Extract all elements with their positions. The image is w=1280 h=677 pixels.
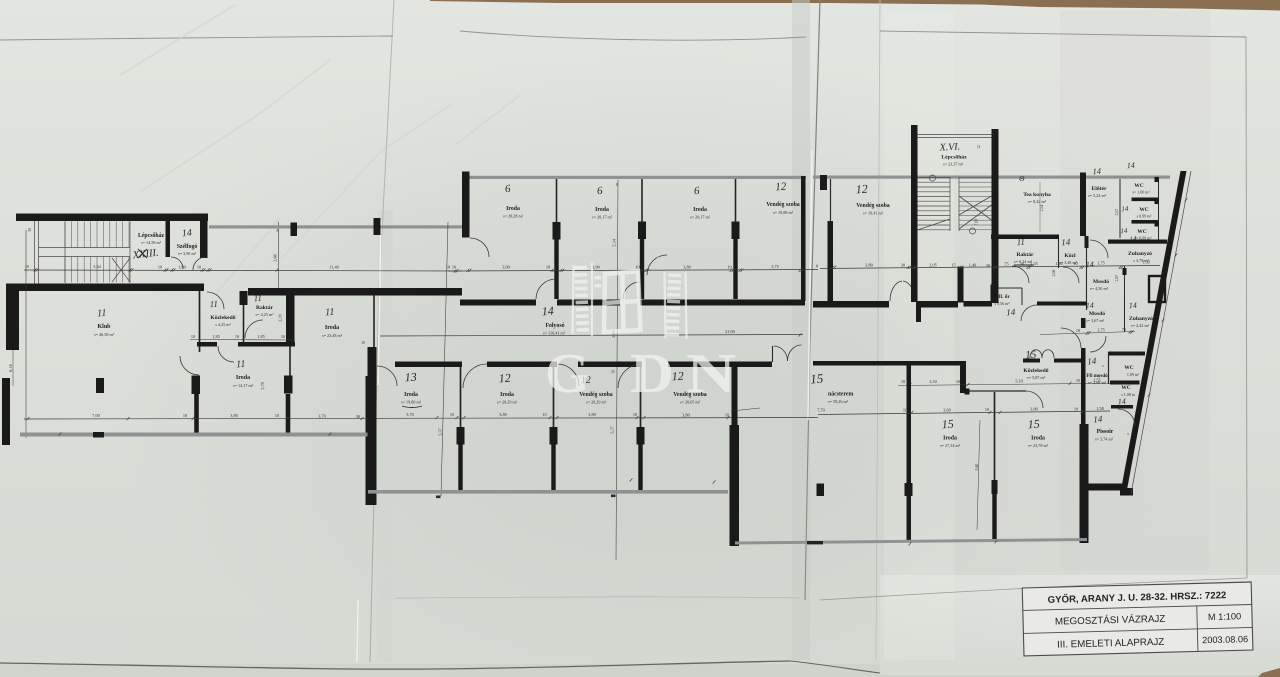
svg-text:14: 14 <box>1129 301 1138 311</box>
svg-text:10: 10 <box>1076 328 1080 333</box>
svg-text:30: 30 <box>986 263 990 268</box>
svg-text:2003.08.06: 2003.08.06 <box>1202 634 1248 645</box>
svg-text:10: 10 <box>956 379 960 384</box>
svg-text:10: 10 <box>361 341 365 345</box>
svg-text:11: 11 <box>325 307 335 319</box>
svg-text:WC: WC <box>1139 207 1148 213</box>
svg-text:10: 10 <box>1074 407 1078 412</box>
svg-text:12: 12 <box>977 145 981 149</box>
svg-text:Ffi mosdó: Ffi mosdó <box>1086 374 1108 379</box>
svg-text:N: N <box>686 343 736 405</box>
svg-text:11: 11 <box>253 293 262 304</box>
svg-text:14: 14 <box>1120 227 1128 236</box>
svg-text:G: G <box>545 343 590 405</box>
svg-text:15: 15 <box>941 417 954 432</box>
svg-text:14: 14 <box>1142 366 1150 375</box>
svg-text:8: 8 <box>616 183 618 187</box>
svg-text:WC: WC <box>1134 183 1143 189</box>
svg-text:14: 14 <box>1118 397 1127 407</box>
svg-text:11: 11 <box>209 299 218 310</box>
svg-text:14: 14 <box>1006 307 1016 318</box>
svg-text:15: 15 <box>951 263 955 268</box>
svg-text:30: 30 <box>356 414 360 419</box>
svg-text:11: 11 <box>236 359 246 371</box>
svg-text:WC: WC <box>1137 229 1146 235</box>
svg-text:Zuhanyzó: Zuhanyzó <box>1129 316 1153 322</box>
svg-text:X.VI.: X.VI. <box>938 141 960 153</box>
svg-text:WC: WC <box>1121 385 1130 391</box>
svg-text:Mosdó: Mosdó <box>1093 279 1109 285</box>
svg-text:30: 30 <box>901 263 905 268</box>
svg-text:Lépcsőház: Lépcsőház <box>941 155 967 161</box>
svg-text:11: 11 <box>97 308 107 320</box>
svg-text:12: 12 <box>775 181 787 194</box>
svg-text:10: 10 <box>612 370 616 374</box>
svg-text:Raktár: Raktár <box>256 305 274 311</box>
svg-text:75: 75 <box>1122 327 1126 332</box>
svg-text:2: 2 <box>1101 365 1105 367</box>
svg-text:13: 13 <box>404 370 417 385</box>
svg-text:10: 10 <box>985 407 989 412</box>
svg-text:14: 14 <box>181 228 192 240</box>
svg-text:12: 12 <box>855 182 868 197</box>
svg-text:0: 0 <box>816 264 818 269</box>
svg-text:14: 14 <box>1086 301 1095 311</box>
svg-text:10: 10 <box>158 265 162 270</box>
svg-text:Közlekedő: Közlekedő <box>1023 368 1048 374</box>
svg-text:10: 10 <box>25 264 29 269</box>
svg-text:Közl: Közl <box>1064 253 1076 259</box>
svg-text:10: 10 <box>633 412 637 417</box>
svg-text:10: 10 <box>235 334 239 339</box>
svg-text:Folyosó: Folyosó <box>545 323 564 329</box>
svg-text:30: 30 <box>28 228 32 232</box>
svg-text:8: 8 <box>277 229 279 233</box>
svg-text:Iroda: Iroda <box>943 436 957 442</box>
svg-text:WC: WC <box>1124 365 1133 371</box>
svg-text:Iroda: Iroda <box>404 392 418 398</box>
svg-text:Szélfogó: Szélfogó <box>177 244 198 250</box>
svg-text:10: 10 <box>281 334 285 339</box>
svg-text:Iroda: Iroda <box>325 325 339 331</box>
svg-text:12: 12 <box>498 371 511 386</box>
svg-text:10: 10 <box>450 412 454 417</box>
svg-text:14: 14 <box>1127 161 1136 171</box>
svg-text:10: 10 <box>727 265 731 270</box>
svg-text:Közlekedő: Közlekedő <box>210 315 235 321</box>
svg-text:Tea konyha: Tea konyha <box>1023 192 1051 198</box>
svg-text:Mosdó: Mosdó <box>1089 311 1105 317</box>
svg-text:14: 14 <box>1061 237 1071 248</box>
svg-text:D: D <box>630 343 674 405</box>
svg-text:Iroda: Iroda <box>595 207 609 213</box>
svg-text:10: 10 <box>903 408 907 413</box>
svg-text:Iroda: Iroda <box>236 375 250 381</box>
svg-text:14: 14 <box>1121 205 1129 214</box>
svg-text:10: 10 <box>275 413 279 418</box>
svg-text:15: 15 <box>810 371 825 387</box>
svg-text:75: 75 <box>1004 262 1008 267</box>
svg-text:Zuhanyzó: Zuhanyzó <box>1128 251 1152 257</box>
svg-text:10: 10 <box>546 265 550 270</box>
svg-text:14: 14 <box>1087 356 1097 367</box>
svg-text:Raktár: Raktár <box>1016 252 1034 258</box>
svg-text:14: 14 <box>541 304 554 319</box>
svg-text:11: 11 <box>1016 237 1025 248</box>
svg-text:Vendég szoba: Vendég szoba <box>766 202 800 208</box>
svg-text:Lépcsőház: Lépcsőház <box>138 233 165 239</box>
svg-text:10: 10 <box>452 265 456 270</box>
svg-text:10: 10 <box>901 379 905 384</box>
svg-text:10: 10 <box>197 265 201 270</box>
svg-text:15: 15 <box>1027 417 1040 432</box>
svg-text:14: 14 <box>1092 166 1102 177</box>
svg-text:10: 10 <box>446 265 450 270</box>
svg-text:Előtér: Előtér <box>1092 186 1107 192</box>
svg-text:III. őr: III. őr <box>996 294 1010 300</box>
svg-text:Iroda: Iroda <box>500 392 514 398</box>
svg-text:10: 10 <box>1076 378 1080 383</box>
svg-text:10: 10 <box>191 334 195 339</box>
svg-text:14: 14 <box>1129 235 1137 244</box>
svg-text:10: 10 <box>542 412 546 417</box>
svg-text:Pissoir: Pissoir <box>1097 429 1114 435</box>
svg-text:Klub: Klub <box>97 324 111 330</box>
svg-text:M 1:100: M 1:100 <box>1208 611 1241 622</box>
svg-text:Iroda: Iroda <box>506 206 520 212</box>
svg-text:14: 14 <box>1093 414 1103 425</box>
svg-text:Iroda: Iroda <box>1031 436 1045 442</box>
svg-text:2: 2 <box>1126 433 1130 435</box>
svg-text:nácsterem: nácsterem <box>828 392 853 398</box>
svg-text:Iroda: Iroda <box>693 207 707 213</box>
svg-text:Vendég szoba: Vendég szoba <box>856 203 890 209</box>
svg-text:10: 10 <box>183 413 187 418</box>
